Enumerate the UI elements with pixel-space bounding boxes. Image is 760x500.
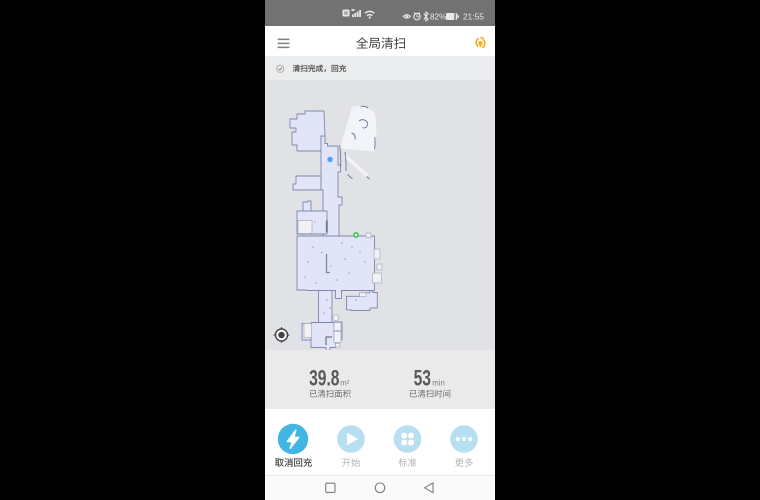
svg-text:m²: m² <box>340 378 349 387</box>
svg-text:39.8: 39.8 <box>309 367 340 391</box>
svg-text:min: min <box>432 378 445 387</box>
svg-text:21:55: 21:55 <box>463 12 484 22</box>
svg-text:53: 53 <box>414 367 431 391</box>
svg-text:82%: 82% <box>430 12 446 21</box>
